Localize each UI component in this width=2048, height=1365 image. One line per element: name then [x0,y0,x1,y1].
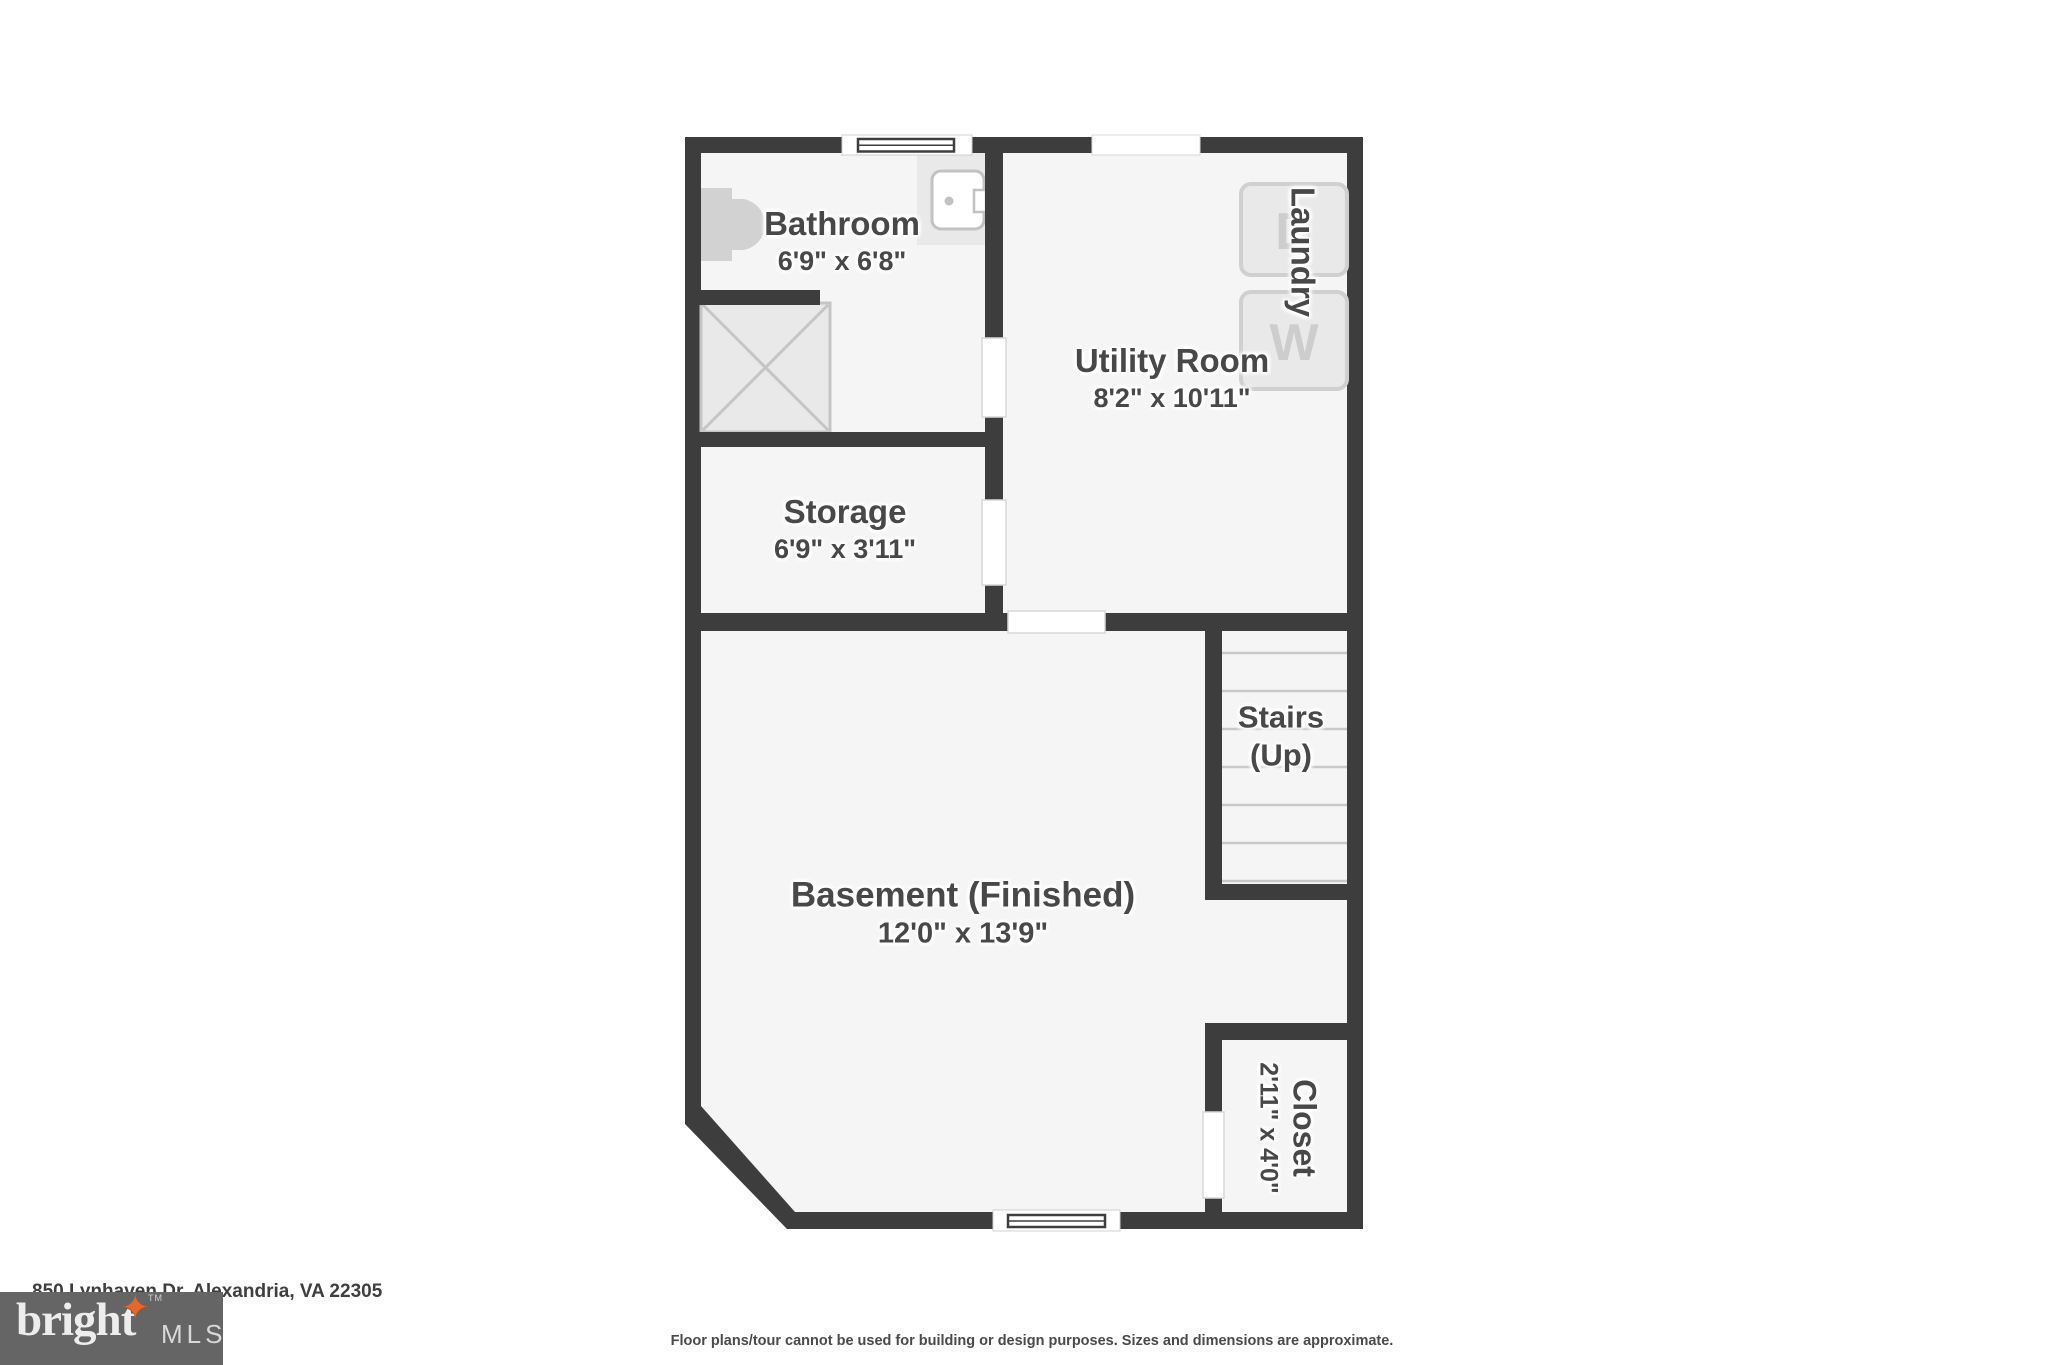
storage-door-opening [982,500,1006,585]
bathroom-partial-wall [685,290,820,305]
bathroom-door-opening [982,338,1006,417]
utility-room-label: Utility Room 8'2" x 10'11" [1075,341,1269,415]
storage-name: Storage [774,492,916,533]
storage-dims: 6'9" x 3'11" [774,533,916,566]
brightmls-logo-brand: bright [16,1293,135,1347]
bathroom-label: Bathroom 6'9" x 6'8" [764,204,920,278]
closet-name: Closet [1284,1062,1324,1194]
closet-top-wall [1205,1023,1363,1040]
basement-dims: 12'0" x 13'9" [791,917,1135,953]
bathroom-dims: 6'9" x 6'8" [764,245,920,278]
floorplan-page: D W Bathroom 6'9" x 6'8" Utility Room 8'… [0,0,2048,1365]
basement-name: Basement (Finished) [791,873,1135,916]
shower-icon [701,303,830,432]
storage-label: Storage 6'9" x 3'11" [774,492,916,566]
closet-door-opening [1203,1112,1224,1198]
bathroom-window [842,135,972,155]
closet-label: Closet 2'11" x 4'0" [1253,1062,1324,1194]
star-icon: ✦ [121,1288,150,1328]
brightmls-logo-suffix: MLS [161,1319,226,1350]
toilet-icon [917,153,986,245]
basement-door-opening [1008,611,1105,633]
utility-room-dims: 8'2" x 10'11" [1075,382,1269,415]
closet-dims: 2'11" x 4'0" [1253,1062,1284,1194]
floorplan-drawing: D W [0,0,2048,1365]
stairs-direction: (Up) [1238,737,1324,775]
basement-window [993,1210,1120,1231]
disclaimer-text: Floor plans/tour cannot be used for buil… [671,1333,1394,1349]
utility-room-name: Utility Room [1075,341,1269,382]
utility-window [1092,135,1200,155]
stairs-left-wall [1205,630,1222,900]
washer-letter: W [1269,314,1319,372]
laundry-name: Laundry [1282,187,1323,317]
stairs-bottom-wall [1205,884,1363,900]
stairs-label: Stairs (Up) [1238,699,1324,776]
trademark-symbol: TM [148,1293,163,1303]
basement-label: Basement (Finished) 12'0" x 13'9" [791,873,1135,952]
brightmls-logo: bright ✦ TM MLS [0,1292,223,1365]
laundry-label: Laundry [1282,187,1323,317]
bathroom-name: Bathroom [764,204,920,245]
bathroom-storage-wall [685,432,1003,447]
stairs-name: Stairs [1238,699,1324,737]
